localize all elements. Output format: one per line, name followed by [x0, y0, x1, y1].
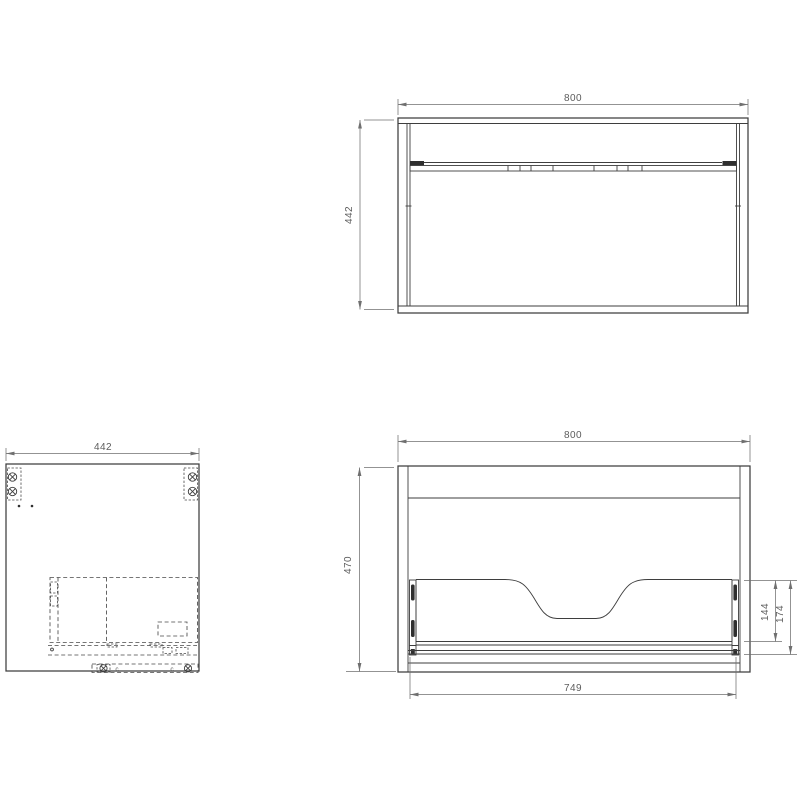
hardware-label: c	[170, 666, 174, 673]
hidden-siphon-recess	[158, 622, 187, 636]
top-view: 800 442	[344, 93, 748, 313]
drawing-sheet: 800 442	[0, 0, 800, 800]
dim-top-width: 800	[398, 93, 748, 115]
dim-side-width: 442	[6, 442, 199, 461]
screw-icon	[8, 487, 16, 495]
mounting-bracket-icon	[8, 468, 22, 500]
dim-label: 442	[344, 206, 355, 224]
dim-label: 800	[564, 430, 582, 441]
screw-icon	[188, 473, 196, 481]
pilot-hole-dot	[31, 505, 34, 508]
corner-bracket-icon	[723, 161, 737, 165]
dim-label: 749	[564, 683, 582, 694]
screw-icon	[188, 487, 196, 495]
hidden-bottom-strip: c c	[92, 664, 198, 673]
dim-front-width: 800	[398, 430, 750, 462]
dim-front-height: 470	[343, 468, 396, 672]
top-view-outline	[398, 118, 748, 313]
dim-label: 174	[775, 605, 786, 623]
dim-label: 442	[94, 442, 112, 453]
technical-drawing: 800 442	[0, 0, 800, 800]
mounting-bracket-icon	[184, 468, 198, 500]
dim-label: 800	[564, 93, 582, 104]
dim-label: 144	[760, 603, 771, 621]
plumbing-cutout-curve	[416, 580, 732, 619]
pilot-hole-dot	[18, 505, 21, 508]
drawer-slide-icon	[410, 580, 417, 655]
front-view: 800 470 749 144 174	[343, 430, 797, 699]
dim-top-depth: 442	[344, 120, 394, 310]
side-view: c c 442	[6, 442, 199, 673]
hidden-drawer-outline	[50, 578, 198, 643]
back-rail	[410, 161, 737, 171]
screw-icon	[8, 473, 16, 481]
side-view-outline	[6, 464, 199, 671]
drawer-back-panel	[416, 580, 732, 646]
drawer-slide-icon	[732, 580, 739, 655]
corner-bracket-icon	[410, 161, 424, 165]
dim-label: 470	[343, 556, 354, 574]
hardware-label: c	[115, 666, 119, 673]
hidden-drawer-runner	[48, 644, 197, 655]
dim-drawer-back-height: 144	[744, 581, 797, 642]
